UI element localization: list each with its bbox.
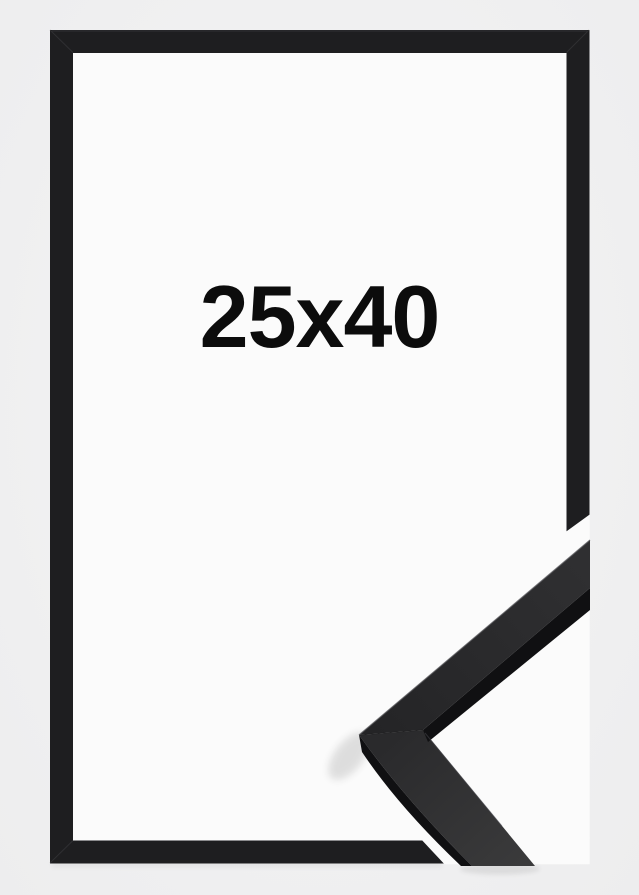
flat-frame-photo <box>50 30 589 868</box>
size-label: 25x40 <box>0 273 639 361</box>
frame-product-image: 25x40 <box>0 0 639 895</box>
frame-graphic <box>0 0 639 895</box>
frame-inner-mount <box>73 52 567 841</box>
